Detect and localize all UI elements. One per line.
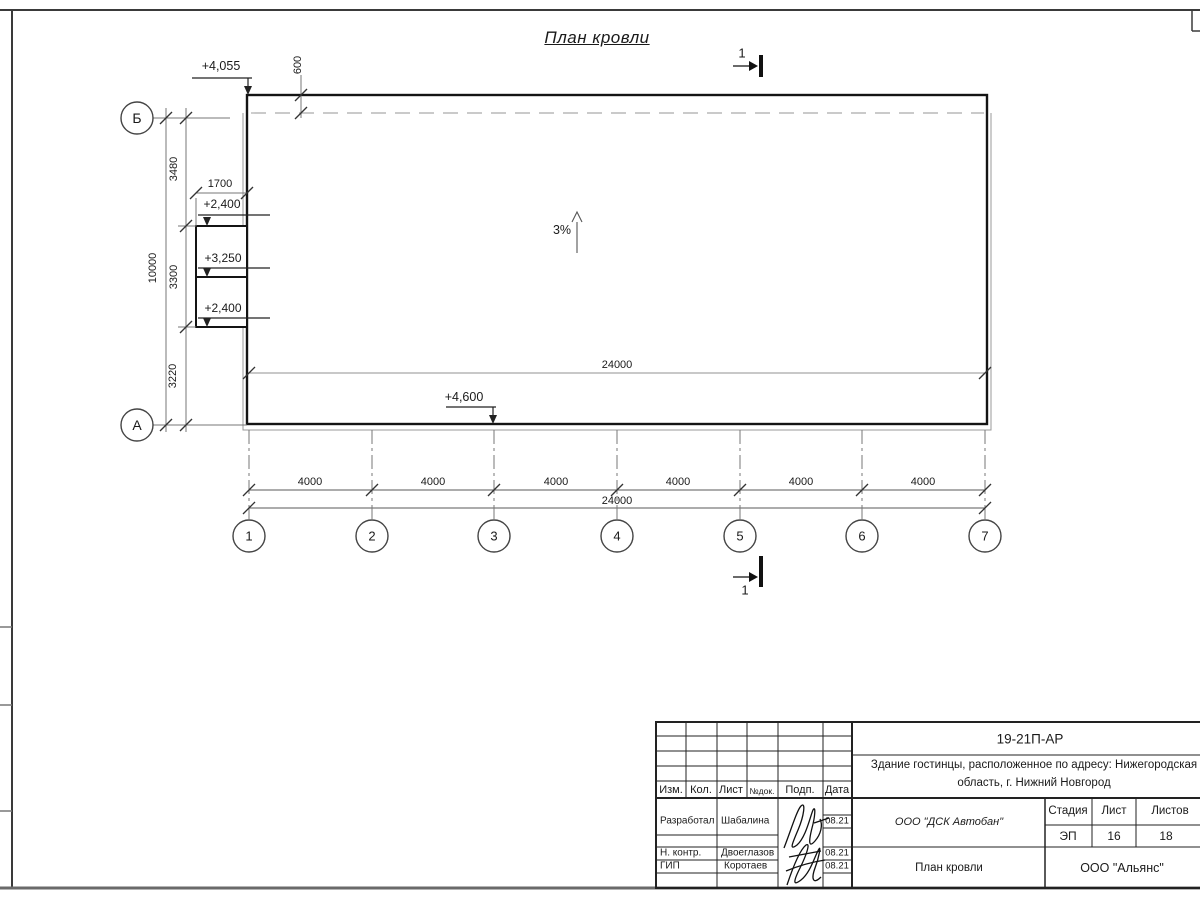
- col-header-kol: Кол.: [690, 784, 712, 796]
- axis-label-4: 4: [613, 529, 620, 544]
- slope-arrow: [572, 212, 582, 253]
- axis-label-1: 1: [245, 529, 252, 544]
- dimension-lines: [122, 75, 985, 519]
- section-label-bottom: 1: [741, 583, 748, 598]
- stage-value: ЭП: [1059, 829, 1076, 843]
- col-header-podp: Подп.: [785, 784, 814, 796]
- dim-total-length: 24000: [602, 495, 633, 507]
- titleblock-doc-code: 19-21П-АР: [997, 732, 1064, 747]
- dimension-ticks: [160, 89, 991, 514]
- stage-header: Стадия: [1048, 805, 1087, 817]
- section-mark-top: [733, 55, 761, 77]
- roof-outline: [243, 95, 991, 430]
- axis-label-3: 3: [490, 529, 497, 544]
- col-header-izm: Изм.: [659, 784, 683, 796]
- sheet-header: Лист: [1102, 805, 1127, 817]
- row-role-razrabotal: Разработал: [660, 816, 714, 827]
- axis-label-6: 6: [858, 529, 865, 544]
- row-date-3: 08.21: [825, 861, 849, 872]
- dim-overhang: 600: [292, 56, 304, 74]
- dim-bay-5: 4000: [789, 476, 813, 488]
- titleblock-sheet-title: План кровли: [915, 862, 983, 874]
- sheets-value: 18: [1159, 829, 1172, 843]
- elevation-canopy-mid: +3,250: [204, 251, 241, 265]
- dim-total-depth: 10000: [147, 253, 159, 284]
- elevation-entry: +4,600: [445, 390, 484, 404]
- dim-bay-4: 4000: [666, 476, 690, 488]
- col-header-ndok: №док.: [750, 786, 775, 796]
- sheets-header: Листов: [1151, 805, 1188, 817]
- row-name-shabalina: Шабалина: [721, 816, 769, 827]
- dim-inner-length: 24000: [602, 359, 633, 371]
- dim-canopy-width: 1700: [208, 178, 232, 190]
- row-date-2: 08.21: [825, 848, 849, 859]
- axis-label-a: А: [132, 417, 141, 433]
- elevation-canopy-top: +2,400: [203, 197, 240, 211]
- slope-label: 3%: [553, 223, 571, 237]
- dim-bay-3: 4000: [544, 476, 568, 488]
- dim-seg-3220: 3220: [167, 364, 179, 388]
- titleblock-object-line2: область, г. Нижний Новгород: [957, 777, 1110, 789]
- signature-shabalina: [784, 805, 829, 848]
- drawing-title: План кровли: [544, 28, 649, 48]
- sheet-frame: [0, 10, 1200, 888]
- dim-bay-2: 4000: [421, 476, 445, 488]
- dim-bay-1: 4000: [298, 476, 322, 488]
- row-role-nkontr: Н. контр.: [660, 848, 701, 859]
- titleblock-contractor: ООО "ДСК Автобан": [895, 816, 1003, 828]
- axis-label-5: 5: [736, 529, 743, 544]
- col-header-list: Лист: [719, 784, 743, 796]
- axis-label-2: 2: [368, 529, 375, 544]
- section-label-top: 1: [738, 46, 745, 61]
- row-date-1: 08.21: [825, 816, 849, 827]
- row-name-dvoeglazov: Двоеглазов: [721, 848, 774, 859]
- signature-korotaev: [786, 845, 825, 885]
- drawing-sheet: План кровли +4,055 600 Б А 3480 1700 +2,…: [0, 0, 1200, 900]
- elevation-roof-corner: +4,055: [202, 59, 241, 73]
- row-role-gip: ГИП: [660, 861, 680, 872]
- axis-label-b: Б: [132, 110, 141, 126]
- axis-label-7: 7: [981, 529, 988, 544]
- dim-bay-6: 4000: [911, 476, 935, 488]
- titleblock-company: ООО "Альянс": [1080, 861, 1164, 875]
- elevation-canopy-bottom: +2,400: [204, 301, 241, 315]
- sheet-value: 16: [1107, 829, 1120, 843]
- col-header-data: Дата: [825, 784, 849, 796]
- dim-seg-3480: 3480: [168, 157, 180, 181]
- titleblock-object-line1: Здание гостинцы, расположенное по адресу…: [871, 759, 1197, 771]
- row-name-korotaev: Коротаев: [724, 861, 767, 872]
- dim-seg-3300: 3300: [168, 265, 180, 289]
